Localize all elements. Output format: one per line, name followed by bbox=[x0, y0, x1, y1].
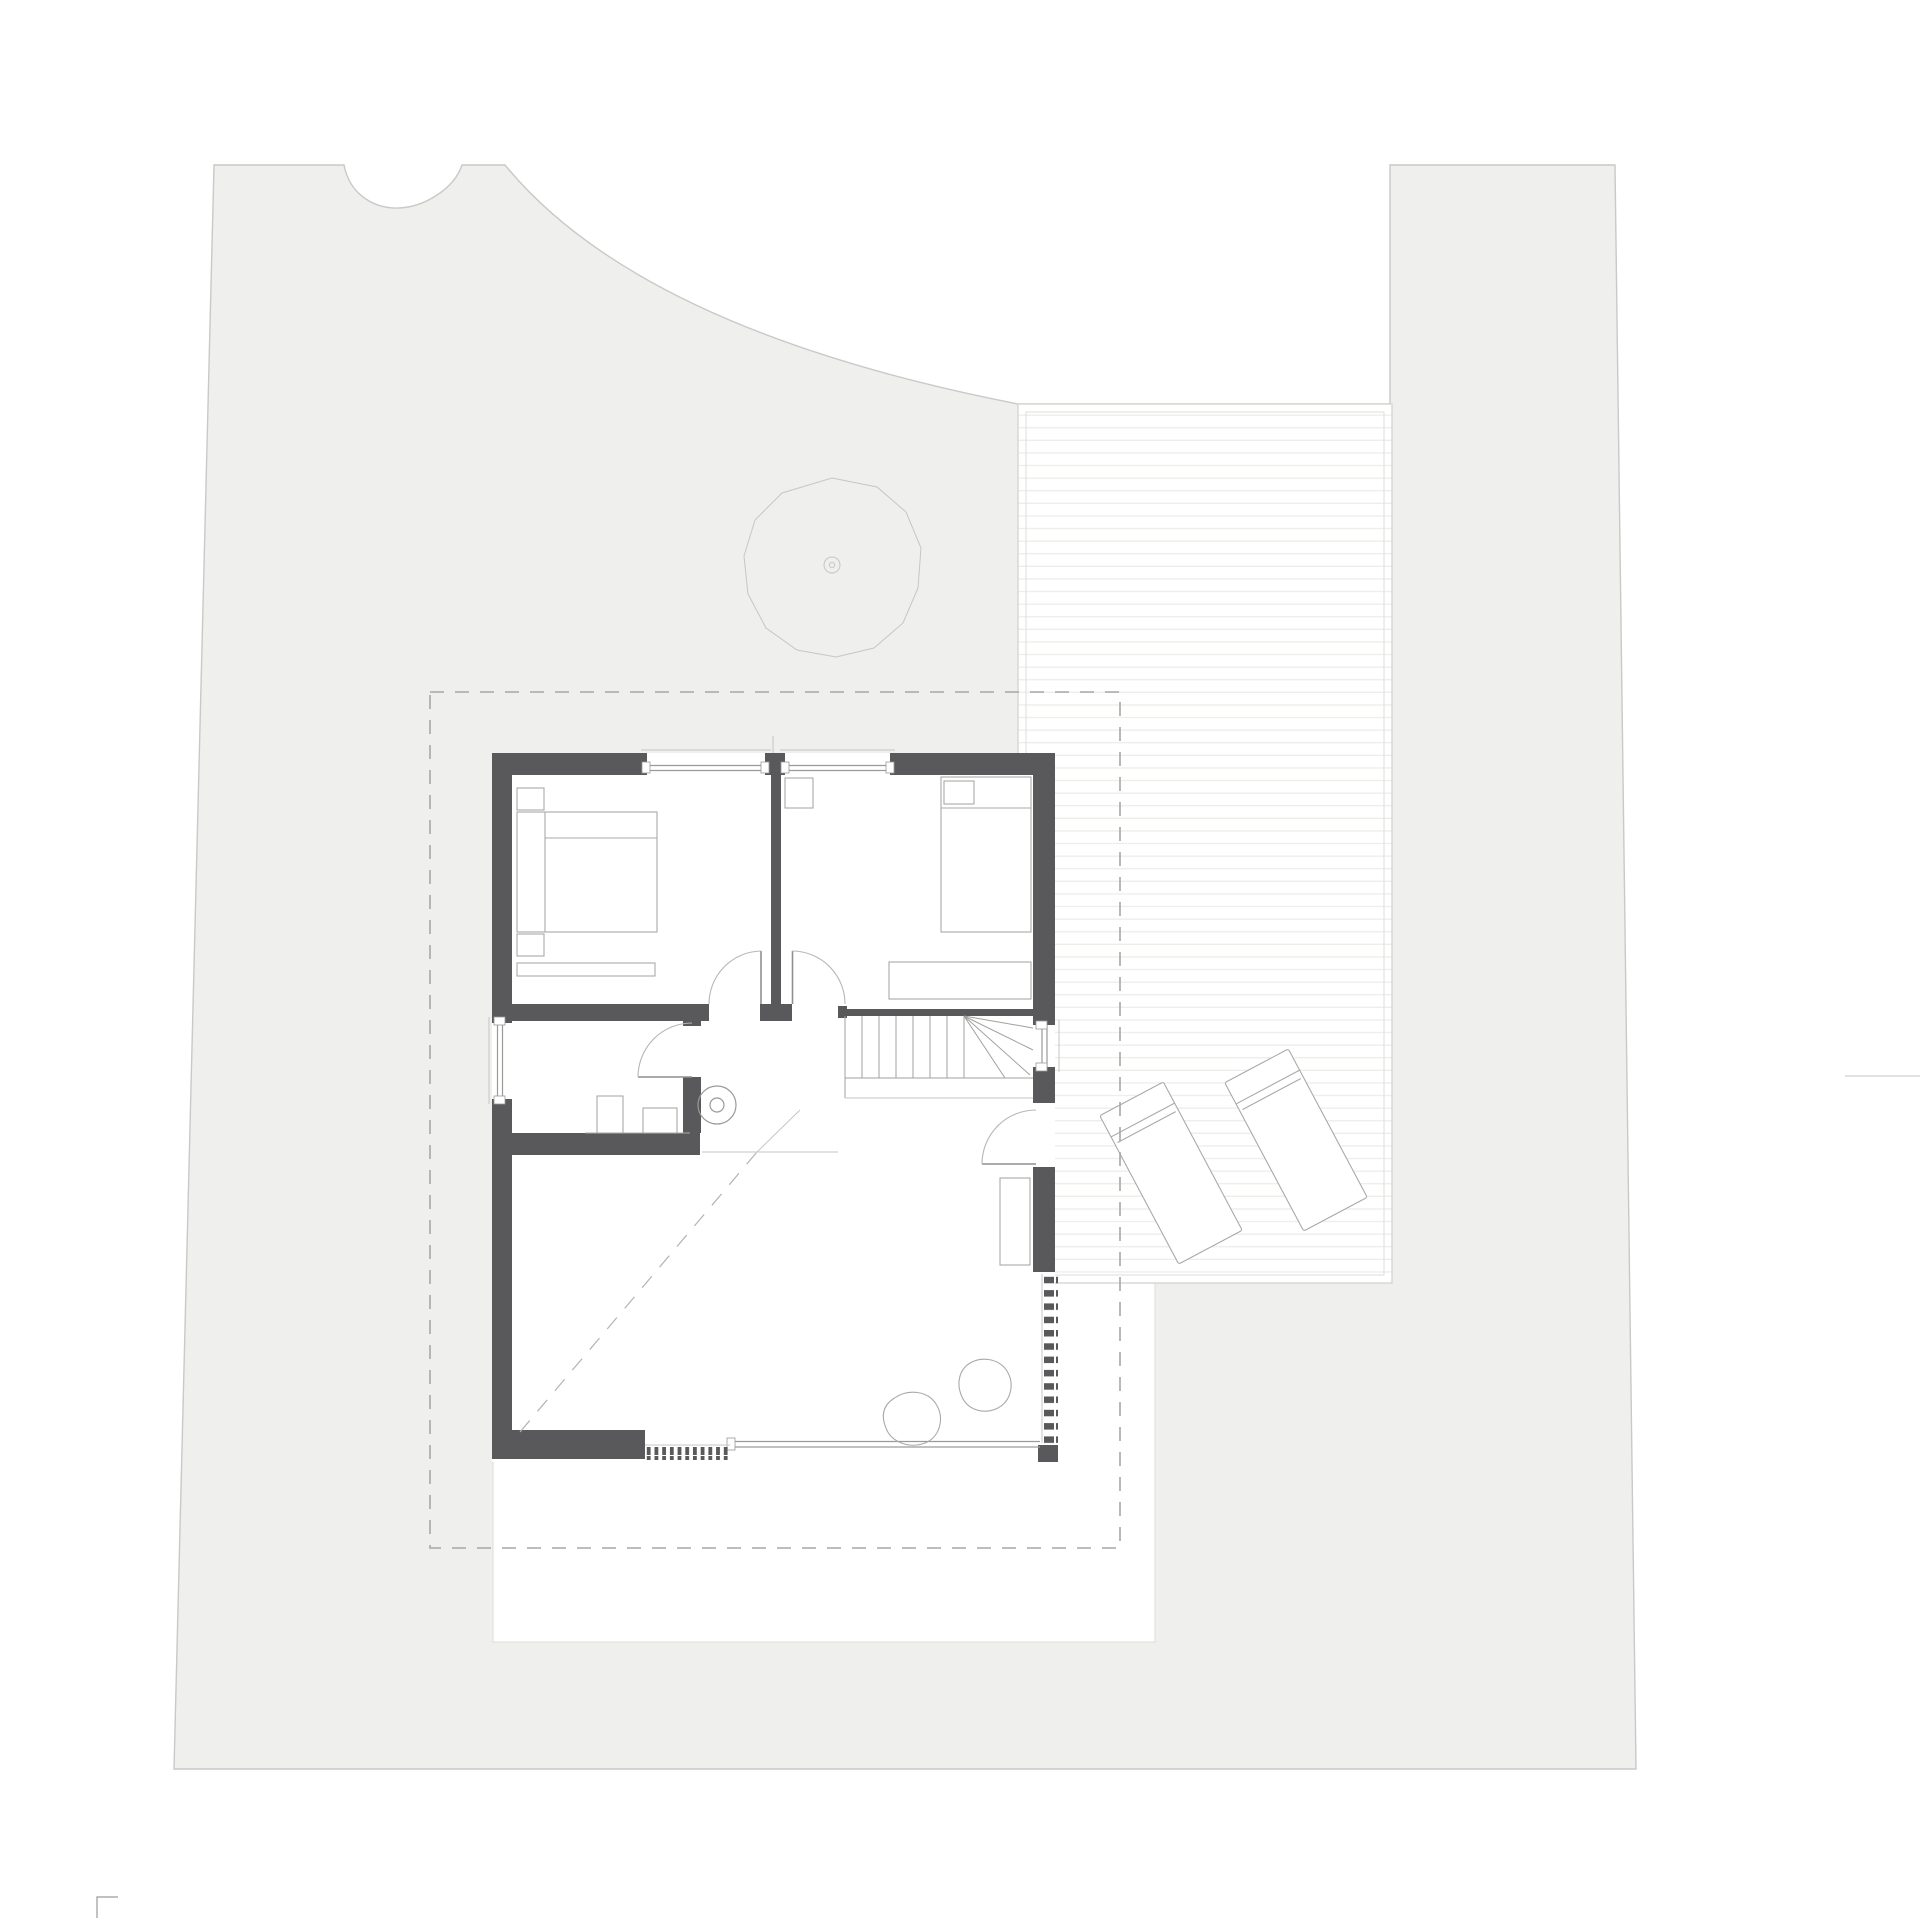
wall-west-lower bbox=[492, 1099, 512, 1459]
toilet bbox=[643, 1108, 677, 1133]
wall-hall-left bbox=[512, 1004, 709, 1021]
pillow bbox=[944, 781, 974, 804]
sideboard bbox=[517, 963, 655, 976]
nightstand bbox=[517, 934, 544, 956]
wall-east-upper bbox=[1033, 753, 1055, 1025]
window-jamb bbox=[642, 762, 650, 773]
wall-hall-center-pier bbox=[760, 1004, 792, 1021]
wall-bedroom-divider bbox=[771, 775, 781, 1004]
double-bed bbox=[517, 812, 657, 932]
window-jamb bbox=[494, 1017, 505, 1025]
floor-plan-page bbox=[0, 0, 1920, 1920]
dresser bbox=[889, 962, 1031, 999]
vent-grille-south bbox=[646, 1447, 730, 1460]
boundary-corner-mark bbox=[97, 1897, 118, 1918]
window-jamb bbox=[781, 762, 789, 773]
house bbox=[489, 750, 1059, 1462]
wall-bath-south bbox=[512, 1133, 700, 1155]
floor-plan-drawing bbox=[0, 0, 1920, 1920]
wall-east-mid-pier bbox=[1033, 1067, 1055, 1103]
window-jamb bbox=[761, 762, 769, 773]
radiator bbox=[1000, 1178, 1030, 1265]
window-jamb bbox=[1036, 1063, 1047, 1071]
nightstand bbox=[517, 788, 544, 810]
wall-south bbox=[492, 1430, 645, 1459]
wall-stair-thin bbox=[845, 1009, 1033, 1016]
wall-stair-cap bbox=[838, 1006, 847, 1018]
window-jamb bbox=[1036, 1021, 1047, 1029]
wall-top-left bbox=[492, 753, 647, 775]
wall-southeast-post bbox=[1038, 1445, 1058, 1462]
window-jamb bbox=[886, 762, 894, 773]
deck-terrace bbox=[1018, 404, 1392, 1283]
sink bbox=[597, 1096, 623, 1133]
wardrobe bbox=[785, 778, 813, 808]
wall-east-lower bbox=[1033, 1167, 1055, 1272]
wall-west-upper bbox=[492, 753, 512, 1023]
wall-top-right bbox=[890, 753, 1055, 775]
slat-screen-east bbox=[1044, 1274, 1058, 1444]
window-jamb bbox=[494, 1096, 505, 1104]
